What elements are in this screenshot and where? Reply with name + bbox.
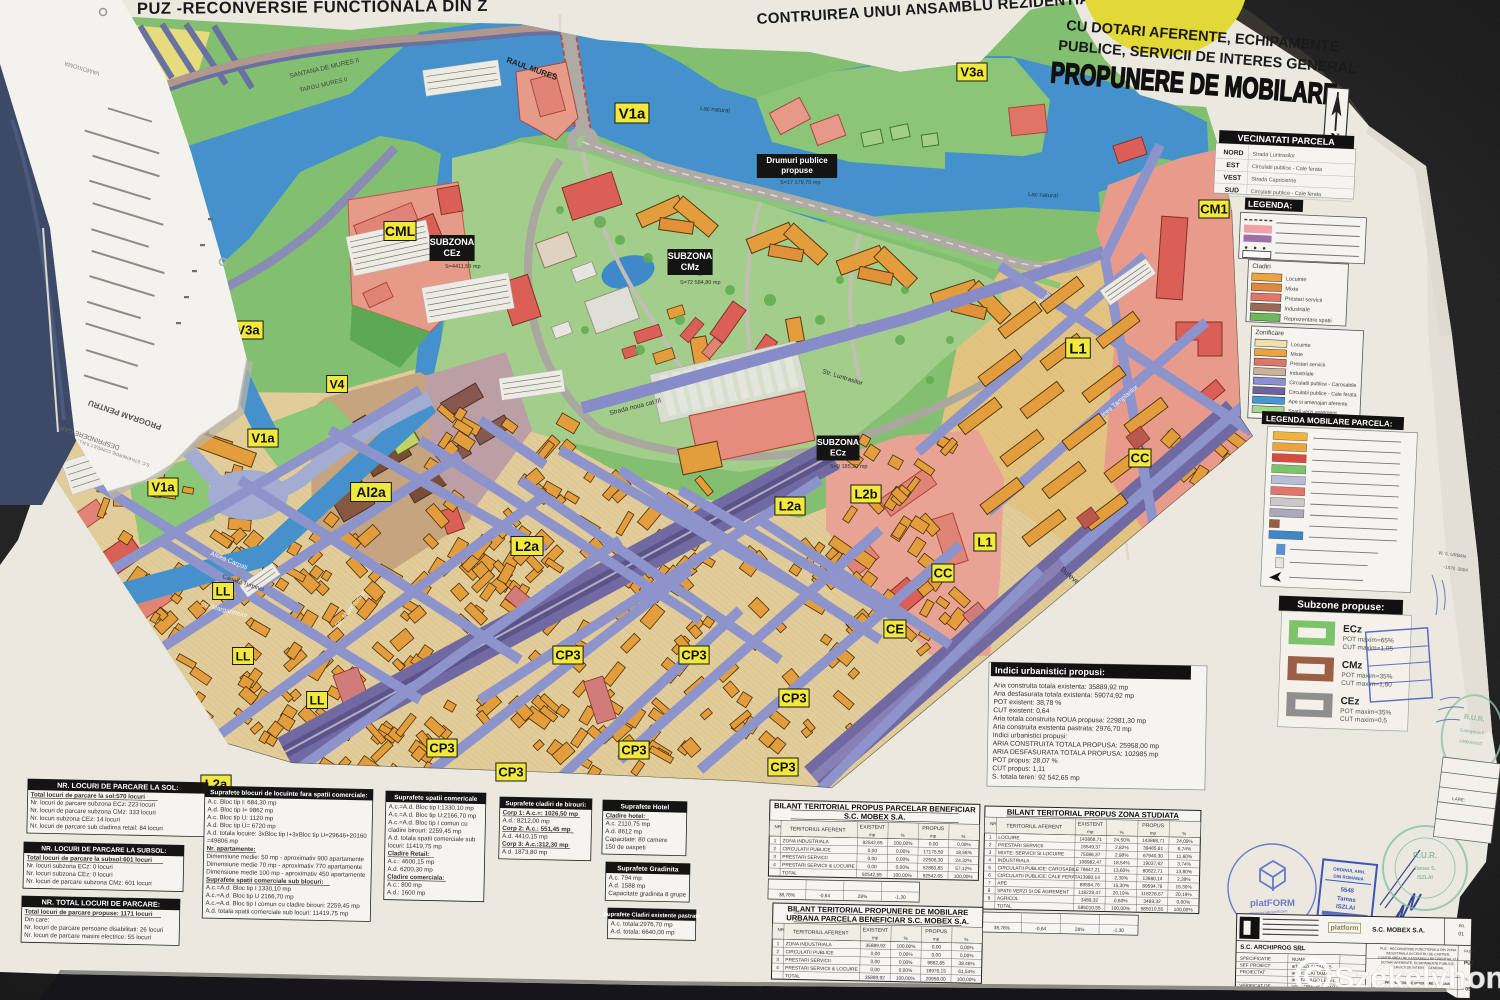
- svg-text:3489,32: 3489,32: [1081, 897, 1099, 903]
- svg-text:2: 2: [989, 842, 992, 848]
- svg-text:-1,30: -1,30: [895, 895, 906, 901]
- svg-text:SUBZONA: SUBZONA: [668, 251, 713, 261]
- svg-text:Mixte: Mixte: [1290, 352, 1303, 359]
- svg-text:92542,65: 92542,65: [862, 872, 882, 878]
- svg-text:A.d.: 1600 mp: A.d.: 1600 mp: [387, 889, 426, 897]
- svg-text:0,00%: 0,00%: [896, 849, 910, 855]
- svg-text:LL: LL: [310, 693, 325, 707]
- svg-text:Din care:: Din care:: [24, 916, 49, 924]
- svg-text:PROPUS: PROPUS: [925, 929, 948, 935]
- svg-text:28%: 28%: [858, 894, 868, 900]
- svg-text:S=72 584,80 mp: S=72 584,80 mp: [680, 280, 721, 286]
- svg-text:75086,37: 75086,37: [1080, 852, 1100, 858]
- svg-text:Suprafete Gradinita: Suprafete Gradinita: [617, 865, 679, 873]
- svg-text:PROPUS: PROPUS: [922, 826, 945, 832]
- svg-text:Tamas S.: Tamas S.: [1414, 866, 1436, 872]
- svg-text:PUZ -RECONVERSIE FUNCTIONALA D: PUZ -RECONVERSIE FUNCTIONALA DIN Z: [137, 0, 488, 18]
- svg-text:19037,62: 19037,62: [1143, 861, 1163, 867]
- svg-text:mp: mp: [872, 935, 879, 940]
- svg-text:platFORM: platFORM: [1250, 898, 1295, 909]
- svg-text:Zonificare: Zonificare: [1255, 329, 1284, 337]
- svg-text:TOTAL: TOTAL: [785, 973, 800, 979]
- svg-text:585010,55: 585010,55: [1140, 906, 1163, 912]
- svg-text:CM1: CM1: [1200, 202, 1227, 217]
- svg-text:0,00%: 0,00%: [960, 953, 974, 959]
- svg-text:LOCUIRE: LOCUIRE: [998, 835, 1019, 841]
- svg-text:150 de oaspeti: 150 de oaspeti: [605, 844, 646, 852]
- svg-text:EXISTENT: EXISTENT: [1078, 821, 1104, 828]
- svg-text:L2a: L2a: [515, 538, 539, 554]
- svg-text:Industriale: Industriale: [1290, 371, 1314, 378]
- svg-text:2,39%: 2,39%: [1114, 875, 1128, 881]
- svg-text:4: 4: [988, 857, 991, 863]
- svg-text:7: 7: [988, 880, 991, 886]
- svg-text:mp: mp: [1087, 829, 1094, 834]
- svg-text:ISZLAI: ISZLAI: [1417, 875, 1433, 881]
- svg-text:PROPUS: PROPUS: [1142, 823, 1165, 829]
- svg-text:35889,92: 35889,92: [865, 975, 885, 981]
- svg-text:-0,64: -0,64: [819, 893, 830, 899]
- svg-text:R.U.R.: R.U.R.: [1413, 851, 1437, 860]
- svg-text:118228,67: 118228,67: [1141, 891, 1164, 897]
- svg-text:1: 1: [774, 838, 777, 844]
- svg-text:143868,71: 143868,71: [1142, 838, 1165, 844]
- svg-text:J26/...: J26/...: [1295, 948, 1305, 952]
- svg-text:CP3: CP3: [681, 648, 706, 663]
- svg-text:100,00%: 100,00%: [954, 874, 974, 880]
- svg-text:TERITORIUL AFERENT: TERITORIUL AFERENT: [790, 826, 847, 833]
- svg-text:%: %: [964, 937, 968, 942]
- svg-text:6: 6: [988, 873, 991, 879]
- svg-text:propuse: propuse: [781, 166, 813, 175]
- svg-text:22506,30: 22506,30: [923, 857, 943, 863]
- svg-text:18,54%: 18,54%: [1113, 860, 1130, 866]
- svg-text:Industriale: Industriale: [1284, 306, 1310, 313]
- svg-text:3: 3: [776, 957, 779, 963]
- svg-text:89594,76: 89594,76: [1080, 882, 1100, 888]
- svg-text:1: 1: [989, 835, 992, 841]
- svg-text:0,00%: 0,00%: [896, 865, 910, 871]
- svg-text:0,00: 0,00: [867, 864, 877, 870]
- svg-text:SUD: SUD: [1225, 187, 1240, 195]
- svg-text:38,78%: 38,78%: [779, 892, 796, 898]
- svg-text:NORD: NORD: [1223, 149, 1243, 157]
- svg-text:CUT propus: 1,11: CUT propus: 1,11: [992, 765, 1045, 773]
- svg-text:79647,21: 79647,21: [1080, 867, 1100, 873]
- svg-text:0,00: 0,00: [870, 967, 880, 973]
- svg-text:mp: mp: [930, 833, 937, 838]
- svg-text:4: 4: [776, 965, 779, 971]
- svg-text:0,00%: 0,00%: [957, 842, 971, 848]
- svg-text:SUBZONA: SUBZONA: [817, 437, 859, 447]
- svg-text:2,39%: 2,39%: [1177, 877, 1191, 883]
- svg-text:A.c. 2110,75 mp: A.c. 2110,75 mp: [605, 820, 650, 828]
- svg-text:ECz: ECz: [1343, 624, 1362, 636]
- svg-text:0,00%: 0,00%: [960, 945, 974, 951]
- svg-text:18976,15: 18976,15: [926, 968, 946, 974]
- svg-text:39485,81: 39485,81: [1143, 846, 1163, 852]
- svg-text:%: %: [901, 833, 905, 838]
- svg-text:-1,30: -1,30: [1113, 928, 1124, 934]
- svg-text:61,54%: 61,54%: [958, 969, 975, 975]
- svg-text:S.C. MOBEX S.A.: S.C. MOBEX S.A.: [1372, 926, 1425, 934]
- svg-text:2: 2: [776, 949, 779, 955]
- svg-text:A.d. totala: 6640,00 mp: A.d. totala: 6640,00 mp: [610, 928, 675, 936]
- svg-text:0,00: 0,00: [871, 951, 881, 957]
- svg-text:ZONA INDUSTRIALA: ZONA INDUSTRIALA: [786, 941, 833, 948]
- svg-text:AGRICOL: AGRICOL: [997, 896, 1019, 902]
- svg-text:platform: platform: [1330, 925, 1358, 933]
- svg-text:Locuinte: Locuinte: [1286, 276, 1307, 283]
- svg-text:V1a: V1a: [251, 431, 275, 446]
- svg-text:CC: CC: [934, 566, 953, 581]
- svg-text:8: 8: [988, 888, 991, 894]
- svg-text:15,30%: 15,30%: [1113, 883, 1130, 889]
- svg-text:585010,55: 585010,55: [1078, 905, 1101, 911]
- svg-text:3,74%: 3,74%: [1177, 861, 1191, 867]
- svg-text:52860,85: 52860,85: [923, 865, 943, 871]
- svg-text:16549,37: 16549,37: [1080, 844, 1100, 850]
- svg-text:CEz: CEz: [443, 248, 461, 258]
- svg-text:20,19%: 20,19%: [1175, 892, 1192, 898]
- svg-text:CMz: CMz: [681, 262, 700, 272]
- svg-text:143868,71: 143868,71: [1079, 837, 1102, 843]
- svg-text:CMz: CMz: [1342, 660, 1363, 672]
- svg-text:A.d. 1588 mp: A.d. 1588 mp: [608, 882, 646, 890]
- svg-text:CP3: CP3: [770, 760, 795, 775]
- svg-text:TOTAL: TOTAL: [997, 903, 1012, 909]
- svg-text:38,78%: 38,78%: [994, 925, 1011, 931]
- svg-text:1: 1: [777, 941, 780, 947]
- svg-text:100,00%: 100,00%: [1174, 907, 1194, 913]
- svg-text:13980,14: 13980,14: [1080, 875, 1100, 881]
- svg-text:%: %: [961, 834, 965, 839]
- svg-text:13980,14: 13980,14: [1142, 876, 1162, 882]
- svg-text:CP3: CP3: [498, 765, 523, 780]
- svg-text:L1: L1: [977, 535, 992, 550]
- svg-text:INDUSTRIALA: INDUSTRIALA: [998, 858, 1031, 865]
- svg-text:4: 4: [773, 862, 776, 868]
- svg-text:80822,71: 80822,71: [1143, 868, 1163, 874]
- svg-text:24,50%: 24,50%: [1114, 837, 1131, 843]
- svg-text:CC: CC: [1131, 451, 1150, 466]
- svg-text:A.c.: 4600,15 mp: A.c.: 4600,15 mp: [387, 858, 434, 866]
- svg-text:A.d. 4410,15 mp: A.d. 4410,15 mp: [502, 833, 548, 841]
- svg-text:0,60%: 0,60%: [1114, 898, 1128, 904]
- svg-text:Indici urbanistici propusi:: Indici urbanistici propusi:: [993, 732, 1068, 740]
- svg-text:LEGENDA:: LEGENDA:: [1248, 199, 1293, 211]
- svg-text:0,60%: 0,60%: [1176, 899, 1190, 905]
- svg-text:SPECIFICATIE: SPECIFICATIE: [1240, 956, 1271, 962]
- svg-text:ECz: ECz: [830, 448, 846, 458]
- svg-text:Indici urbanistici propusi:: Indici urbanistici propusi:: [995, 665, 1105, 677]
- svg-text:28%: 28%: [1075, 927, 1085, 933]
- svg-text:0,00%: 0,00%: [899, 968, 913, 974]
- svg-text:mp: mp: [869, 832, 876, 837]
- svg-text:0,00%: 0,00%: [899, 952, 913, 958]
- svg-text:89594,76: 89594,76: [1142, 884, 1162, 890]
- svg-text:A.c. 794 mp: A.c. 794 mp: [609, 874, 643, 882]
- svg-text:35889,92: 35889,92: [865, 943, 885, 949]
- svg-text:SEF PROIECT: SEF PROIECT: [1240, 962, 1271, 968]
- svg-text:Suprafete Hotel: Suprafete Hotel: [620, 803, 669, 811]
- svg-text:TERITORIUL AFERENT: TERITORIUL AFERENT: [793, 929, 850, 936]
- svg-text:A.c.: 800 mp: A.c.: 800 mp: [387, 881, 422, 889]
- svg-text:3489,32: 3489,32: [1143, 899, 1161, 905]
- svg-text:2: 2: [773, 846, 776, 852]
- svg-text:3: 3: [773, 854, 776, 860]
- svg-text:2,82%: 2,82%: [1115, 845, 1129, 851]
- svg-text:TOTAL: TOTAL: [782, 870, 797, 876]
- svg-text:01: 01: [1458, 931, 1464, 937]
- svg-text:S=4411,50 mp: S=4411,50 mp: [445, 264, 481, 270]
- svg-text:=49806 mp: =49806 mp: [207, 837, 239, 845]
- svg-text:POT propus: 28,07 %: POT propus: 28,07 %: [992, 757, 1057, 765]
- svg-text:92542,65: 92542,65: [923, 873, 943, 879]
- svg-text:Al2a: Al2a: [356, 484, 386, 500]
- svg-text:locuri: 11419,75 mp: locuri: 11419,75 mp: [388, 842, 443, 850]
- svg-text:A.d. 8612 mp: A.d. 8612 mp: [605, 828, 643, 836]
- svg-text:Locuinte: Locuinte: [1291, 342, 1311, 349]
- svg-text:CP3: CP3: [555, 648, 580, 663]
- svg-text:CP3: CP3: [781, 691, 806, 706]
- svg-text:57,12%: 57,12%: [955, 866, 972, 872]
- svg-text:100,00%: 100,00%: [896, 976, 916, 982]
- svg-text:TERITORIUL AFERENT: TERITORIUL AFERENT: [1006, 823, 1063, 830]
- svg-text:0,00: 0,00: [929, 841, 939, 847]
- svg-text:S=9 185,20 mp: S=9 185,20 mp: [830, 464, 867, 470]
- svg-text:9862,85: 9862,85: [927, 960, 945, 966]
- svg-text:EST: EST: [1226, 162, 1240, 170]
- svg-text:VEST: VEST: [1223, 174, 1242, 182]
- svg-text:11,60%: 11,60%: [1176, 854, 1193, 860]
- svg-text:mp: mp: [1150, 830, 1157, 835]
- svg-text:15,30%: 15,30%: [1175, 884, 1192, 890]
- svg-text:%: %: [904, 936, 908, 941]
- svg-text:A.d.: 8212,00 mp: A.d.: 8212,00 mp: [502, 817, 550, 825]
- svg-text:CUT existent: 0,64: CUT existent: 0,64: [993, 707, 1049, 715]
- svg-text:118228,47: 118228,47: [1078, 890, 1101, 896]
- svg-text:CP3: CP3: [621, 743, 646, 758]
- svg-text:5: 5: [988, 865, 991, 871]
- svg-text:24,09%: 24,09%: [1176, 839, 1193, 845]
- svg-text:LL: LL: [236, 649, 251, 663]
- svg-text:L1: L1: [1069, 340, 1087, 357]
- svg-text:S=17 179,70 mp: S=17 179,70 mp: [780, 180, 821, 186]
- svg-text:0,00: 0,00: [932, 944, 942, 950]
- svg-text:24,32%: 24,32%: [955, 858, 972, 864]
- svg-text:17175,50: 17175,50: [923, 849, 943, 855]
- svg-text:PRESTARI SERVICII: PRESTARI SERVICII: [998, 842, 1044, 849]
- svg-text:Drumuri publice: Drumuri publice: [766, 156, 828, 165]
- svg-text:PR.: PR.: [1459, 923, 1466, 928]
- svg-text:20,19%: 20,19%: [1113, 890, 1130, 896]
- svg-text:13,80%: 13,80%: [1176, 869, 1193, 875]
- svg-text:%: %: [1182, 831, 1186, 836]
- svg-text:CE: CE: [886, 622, 904, 637]
- svg-text:POT existent: 38,78 %: POT existent: 38,78 %: [993, 699, 1061, 707]
- svg-text:100,00%: 100,00%: [896, 944, 916, 950]
- svg-text:V3a: V3a: [960, 65, 984, 80]
- svg-text:92542,65: 92542,65: [862, 840, 882, 846]
- svg-text:38,46%: 38,46%: [958, 961, 975, 967]
- svg-text:20958,00: 20958,00: [926, 976, 946, 982]
- svg-text:100,00%: 100,00%: [893, 841, 913, 847]
- svg-text:PROIECTAT: PROIECTAT: [1240, 969, 1266, 975]
- svg-text:13,60%: 13,60%: [1113, 868, 1130, 874]
- svg-text:mp: mp: [933, 936, 940, 941]
- svg-text:0,00: 0,00: [868, 848, 878, 854]
- svg-text:67940,30: 67940,30: [1143, 853, 1163, 859]
- svg-text:6,74%: 6,74%: [1178, 846, 1192, 852]
- svg-text:Mixte: Mixte: [1285, 286, 1298, 293]
- svg-text:L2a: L2a: [779, 499, 802, 514]
- svg-text:NR: NR: [990, 821, 997, 826]
- svg-text:9: 9: [988, 895, 991, 901]
- svg-text:APE: APE: [997, 880, 1007, 886]
- svg-text:V1a: V1a: [151, 480, 175, 495]
- svg-text:PRESTARI SERVICII: PRESTARI SERVICII: [785, 957, 831, 964]
- svg-text:%: %: [1120, 830, 1124, 835]
- svg-text:3: 3: [989, 850, 992, 856]
- svg-text:V4: V4: [330, 377, 345, 391]
- svg-text:EXISTENT: EXISTENT: [860, 824, 886, 831]
- svg-text:CP3: CP3: [429, 741, 454, 756]
- svg-text:0,00: 0,00: [867, 856, 877, 862]
- svg-text:A.d. 6200,30 mp: A.d. 6200,30 mp: [387, 866, 433, 874]
- svg-text:18,56%: 18,56%: [956, 850, 973, 856]
- svg-text:FAZA: FAZA: [1464, 949, 1474, 953]
- svg-text:PRESTARI SERVICII: PRESTARI SERVICII: [782, 854, 828, 861]
- svg-text:0,00: 0,00: [870, 959, 880, 965]
- svg-text:EXISTENT: EXISTENT: [863, 927, 889, 934]
- svg-text:ZONA INDUSTRIALA: ZONA INDUSTRIALA: [783, 838, 830, 845]
- svg-text:-0,64: -0,64: [1035, 926, 1046, 932]
- svg-text:CML: CML: [385, 223, 416, 239]
- svg-text:SUBZONA: SUBZONA: [430, 237, 475, 247]
- svg-text:LL: LL: [216, 584, 231, 598]
- svg-text:V1a: V1a: [619, 105, 646, 122]
- svg-text:0,00%: 0,00%: [899, 960, 913, 966]
- svg-text:100,00%: 100,00%: [893, 873, 913, 879]
- svg-text:2,98%: 2,98%: [1115, 853, 1129, 859]
- svg-text:0,00: 0,00: [932, 952, 942, 958]
- svg-text:A.d. 1873,80 mp: A.d. 1873,80 mp: [502, 848, 548, 856]
- svg-text:100,00%: 100,00%: [1111, 906, 1131, 912]
- svg-text:L2b: L2b: [854, 487, 877, 502]
- svg-text:Cladiri: Cladiri: [1252, 263, 1271, 271]
- svg-text:CEz: CEz: [1340, 696, 1359, 708]
- svg-text:0,00%: 0,00%: [896, 857, 910, 863]
- svg-text:100,00%: 100,00%: [957, 977, 977, 983]
- svg-text:108982,47: 108982,47: [1079, 859, 1102, 865]
